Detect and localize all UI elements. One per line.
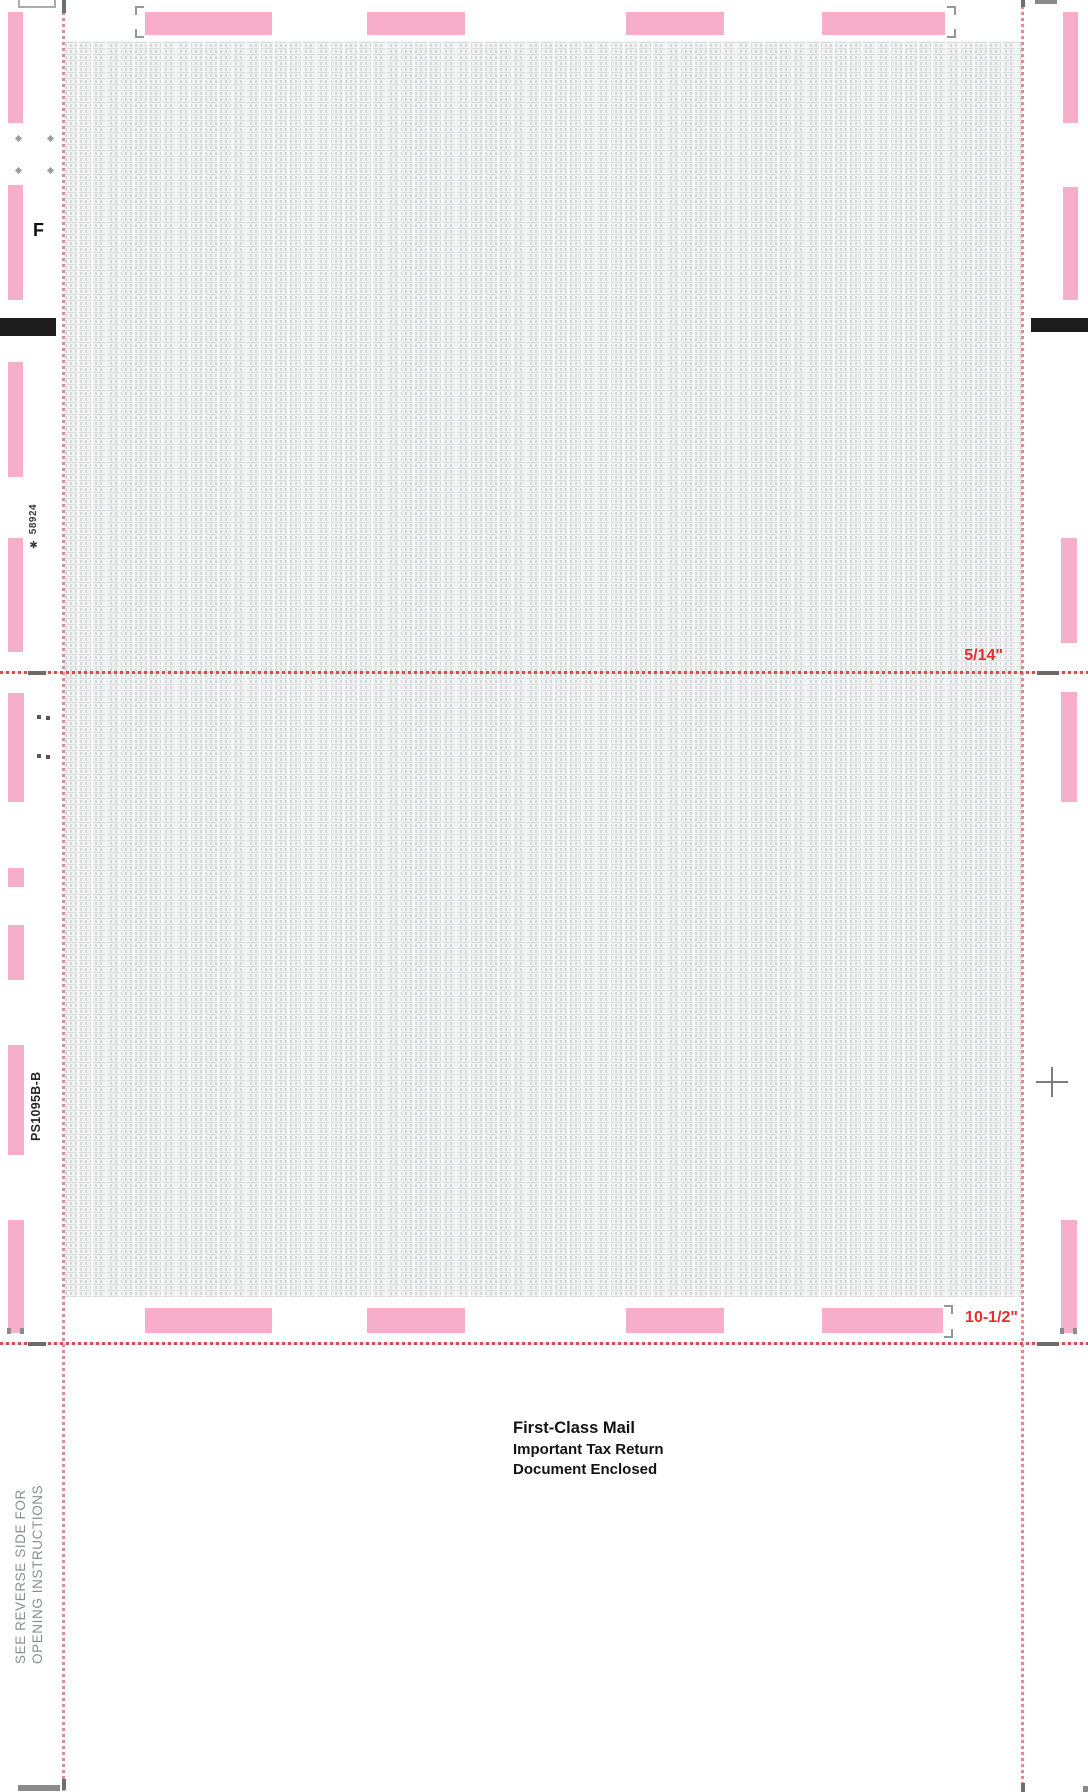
glue-strip-left bbox=[8, 538, 23, 652]
glue-strip-right bbox=[1061, 538, 1077, 643]
registration-dot bbox=[46, 755, 50, 759]
glue-strip-left bbox=[8, 1045, 24, 1155]
registration-dot bbox=[37, 715, 41, 719]
form-number: PS1095B-B bbox=[29, 1055, 43, 1141]
fold-line-second bbox=[0, 1342, 1088, 1345]
registration-cross bbox=[1051, 1067, 1053, 1097]
registration-strip-bottom bbox=[367, 1308, 465, 1333]
registration-dot bbox=[47, 135, 54, 142]
perforation-line-left bbox=[62, 0, 65, 1792]
glue-strip-right bbox=[1063, 12, 1078, 123]
perforation-tip bbox=[62, 1779, 66, 1790]
opening-instructions-line: SEE REVERSE SIDE FOR bbox=[12, 1421, 29, 1664]
glue-strip-right bbox=[1063, 187, 1078, 300]
fold-line-mark bbox=[28, 671, 46, 675]
corner-bracket bbox=[944, 1329, 953, 1338]
registration-strip-top bbox=[145, 12, 272, 35]
perforation-tip bbox=[62, 0, 66, 13]
registration-nub bbox=[1073, 1328, 1077, 1334]
black-timing-mark-right bbox=[1031, 318, 1088, 332]
registration-strip-bottom bbox=[822, 1308, 943, 1333]
glue-strip-left bbox=[8, 693, 24, 802]
registration-nub bbox=[7, 1328, 11, 1334]
registration-strip-bottom bbox=[626, 1308, 724, 1333]
glue-strip-left bbox=[8, 1220, 24, 1333]
mailing-notice: First-Class Mail Important Tax Return Do… bbox=[513, 1417, 664, 1480]
opening-instructions-note: SEE REVERSE SIDE FOR OPENING INSTRUCTION… bbox=[12, 1421, 46, 1664]
registration-dot bbox=[47, 167, 54, 174]
corner-bracket bbox=[135, 29, 144, 38]
stock-number: ✱ 58924 bbox=[28, 489, 39, 549]
glue-strip-right bbox=[1061, 692, 1077, 802]
cut-mark bbox=[18, 0, 56, 8]
perforation-line-right bbox=[1021, 0, 1024, 1792]
corner-bracket bbox=[947, 29, 956, 38]
mailing-notice-line: Document Enclosed bbox=[513, 1460, 664, 1480]
registration-strip-bottom bbox=[145, 1308, 272, 1333]
cut-mark bbox=[1083, 1786, 1088, 1792]
registration-strip-top bbox=[822, 12, 945, 35]
glue-strip-right bbox=[1061, 1220, 1077, 1333]
form-alignment-letter: F bbox=[33, 220, 44, 241]
glue-strip-left bbox=[8, 362, 23, 477]
black-timing-mark-left bbox=[0, 318, 56, 336]
fold-line-mark bbox=[1037, 1342, 1059, 1346]
fold-line-mark bbox=[1037, 671, 1059, 675]
registration-dot bbox=[15, 135, 22, 142]
fold-measurement-label: 5/14" bbox=[928, 647, 1003, 665]
fold-measurement-label: 10-1/2" bbox=[928, 1309, 1018, 1327]
corner-bracket bbox=[947, 6, 956, 15]
fold-line-first bbox=[0, 671, 1088, 674]
fold-line-mark bbox=[28, 1342, 46, 1346]
perforation-tip bbox=[1021, 0, 1025, 7]
opening-instructions-line: OPENING INSTRUCTIONS bbox=[29, 1421, 46, 1664]
security-pattern-panel bbox=[65, 41, 1022, 1297]
glue-strip-left bbox=[8, 925, 24, 980]
registration-nub bbox=[1060, 1328, 1064, 1334]
cut-mark bbox=[1035, 0, 1057, 4]
registration-strip-top bbox=[367, 12, 465, 35]
perforation-tip bbox=[1021, 1783, 1025, 1792]
registration-dot bbox=[46, 716, 50, 720]
registration-dot bbox=[37, 754, 41, 758]
pressure-seal-form-sheet: F ✱ 58924 PS1095B-B 5/14" 10-1/2" First-… bbox=[0, 0, 1088, 1792]
registration-nub bbox=[20, 1328, 24, 1334]
glue-strip-left bbox=[8, 12, 23, 123]
glue-strip-left bbox=[8, 868, 24, 887]
mailing-notice-line: First-Class Mail bbox=[513, 1417, 664, 1440]
registration-strip-top bbox=[626, 12, 724, 35]
glue-strip-left bbox=[8, 185, 23, 300]
mailing-notice-line: Important Tax Return bbox=[513, 1440, 664, 1460]
corner-bracket bbox=[135, 6, 144, 15]
cut-mark bbox=[18, 1785, 60, 1791]
registration-dot bbox=[15, 167, 22, 174]
